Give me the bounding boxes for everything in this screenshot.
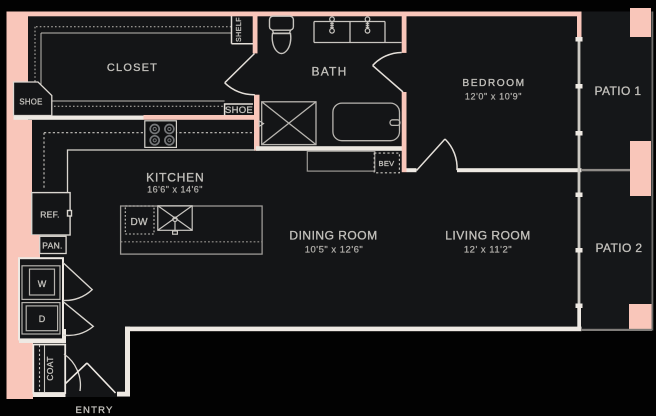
svg-text:REF.: REF.	[40, 210, 60, 220]
svg-text:D: D	[39, 314, 46, 324]
svg-text:PAN.: PAN.	[42, 241, 62, 251]
svg-text:CLOSET: CLOSET	[107, 62, 158, 74]
svg-text:16'6" x 14'6": 16'6" x 14'6"	[147, 185, 203, 195]
svg-text:BEV: BEV	[379, 159, 395, 168]
svg-text:SHOE: SHOE	[225, 105, 253, 116]
svg-text:W: W	[38, 279, 47, 289]
svg-text:KITCHEN: KITCHEN	[146, 171, 204, 185]
svg-text:LIVING ROOM: LIVING ROOM	[445, 228, 531, 242]
svg-text:12'0" x 10'9": 12'0" x 10'9"	[465, 91, 522, 101]
svg-text:BATH: BATH	[312, 65, 348, 79]
svg-text:PATIO 1: PATIO 1	[594, 84, 641, 98]
svg-text:DINING ROOM: DINING ROOM	[289, 228, 377, 242]
svg-text:COAT: COAT	[45, 356, 55, 381]
svg-text:12' x 11'2": 12' x 11'2"	[464, 244, 512, 255]
svg-text:SHOE: SHOE	[19, 97, 42, 106]
svg-text:BEDROOM: BEDROOM	[462, 78, 525, 89]
svg-text:ENTRY: ENTRY	[75, 405, 113, 416]
svg-text:PATIO 2: PATIO 2	[595, 241, 642, 255]
svg-text:10'5" x 12'6": 10'5" x 12'6"	[305, 244, 364, 255]
svg-text:DW: DW	[130, 217, 148, 228]
svg-text:SHELF: SHELF	[236, 17, 243, 42]
